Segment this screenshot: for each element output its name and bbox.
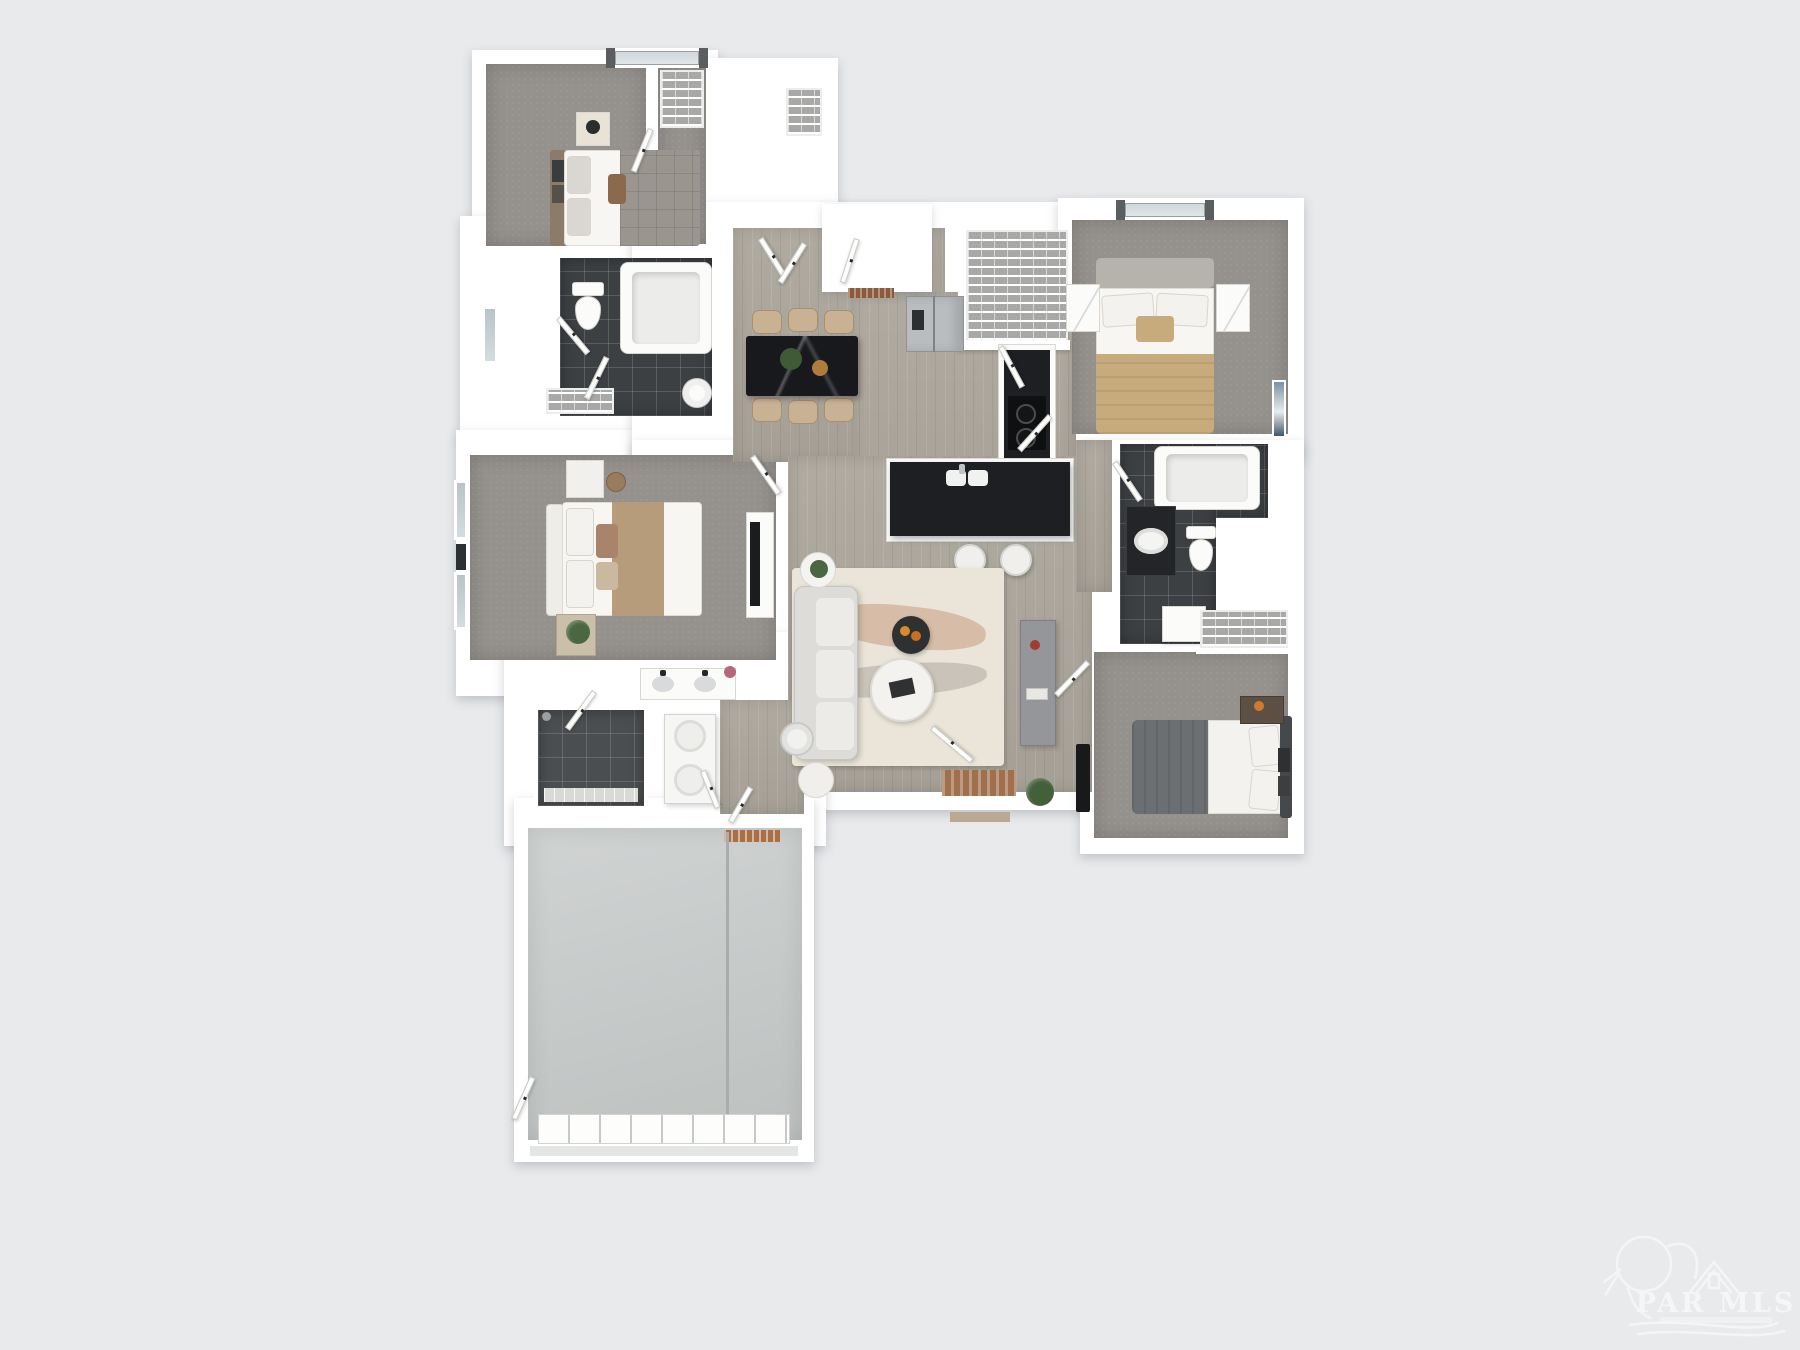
watermark-title: PAR MLS [1636, 1288, 1797, 1319]
bedroom3-wall-art [1278, 776, 1290, 796]
sofa-cushion [816, 650, 854, 698]
garage-floor [528, 828, 802, 1140]
master-stool [606, 472, 626, 492]
bedroom1-window [612, 48, 702, 68]
bedroom1-pillow [567, 198, 591, 236]
bedroom2-wall-art [1272, 380, 1286, 438]
living-tv [1076, 744, 1090, 812]
master-vanity-sink [652, 676, 674, 692]
cooktop-burner [1016, 404, 1036, 424]
entry-coat-closet-shelving [786, 88, 822, 136]
floor-plan-image: PAR MLS [0, 0, 1800, 1350]
dining-chair [824, 398, 854, 422]
bedroom1-pillow [567, 156, 591, 194]
washer-door [674, 720, 706, 752]
bedroom3-closet-shelving [1200, 610, 1288, 648]
dryer-door [674, 764, 706, 796]
bathroom2-sink [1134, 528, 1168, 554]
vanity-flowers [724, 666, 736, 678]
master-pillow [566, 560, 594, 608]
master-bed-runner [612, 502, 664, 616]
dining-chair [752, 310, 782, 334]
console-decor-bowl [1030, 640, 1040, 650]
bar-stool [1000, 544, 1032, 576]
garage-floor-seam [726, 832, 729, 1138]
bedroom2-window [1122, 200, 1208, 220]
bedroom2-blanket [1096, 354, 1214, 434]
bedroom2-window-sash [1116, 200, 1125, 220]
garage-door-panel [538, 1114, 790, 1144]
bedroom3-wall-art [1278, 748, 1290, 772]
entry-threshold [848, 288, 894, 298]
garage-entry-mat [724, 830, 780, 842]
bedroom3-decor [1254, 701, 1264, 711]
pouf [798, 762, 834, 798]
dining-chair [824, 310, 854, 334]
bedroom1-throw-pillow [608, 174, 626, 204]
pantry-shelving [966, 230, 1068, 342]
pelican-icon [1617, 1237, 1671, 1291]
bedroom1-window-sash [606, 48, 615, 68]
master-wall-art [456, 544, 466, 570]
toilet-tank [572, 282, 604, 296]
shower-trim [544, 788, 638, 802]
front-step [950, 812, 1010, 822]
master-window [454, 572, 468, 630]
bath-window [482, 306, 498, 364]
bedroom1-closet-shelving [660, 70, 704, 128]
bedroom3-pillow [1248, 725, 1282, 768]
sofa-cushion [816, 702, 854, 750]
refrigerator-dispenser [912, 310, 924, 330]
master-pillow [566, 508, 594, 556]
dining-chair [788, 308, 818, 332]
pedestal-sink [682, 378, 712, 408]
island-faucet [959, 464, 965, 474]
bedroom1-lamp [586, 120, 600, 134]
front-door-mat [942, 770, 1016, 796]
wall-entry-hall-top [688, 58, 838, 218]
dining-centerpiece-plant [780, 348, 802, 370]
bathroom2-toilet-tank [1186, 526, 1216, 539]
bedroom2-nightstand [1066, 284, 1100, 332]
pelican-wing [1668, 1244, 1697, 1278]
side-table-plant [810, 560, 828, 578]
bedroom1-window-sash [699, 48, 708, 68]
bathroom2-tub-basin [1166, 454, 1248, 502]
swoosh-icon [1630, 1323, 1777, 1328]
floor-plant [1026, 778, 1054, 806]
bedroom2-headboard [1096, 258, 1214, 288]
watermark: PAR MLS [1598, 1178, 1800, 1350]
dining-fruit-bowl [812, 360, 828, 376]
fruit-orange [900, 626, 910, 636]
master-vanity-faucet [702, 670, 708, 676]
master-throw-pillow [596, 524, 618, 558]
bedroom2-window-sash [1205, 200, 1214, 220]
bedroom2-accent-pillow [1136, 316, 1174, 342]
bedroom3-blanket [1132, 720, 1208, 814]
shower-head [542, 712, 551, 721]
master-closet-shelving [546, 388, 614, 414]
hallway-floor [1076, 440, 1112, 592]
bedroom3-closet-wall [1196, 648, 1290, 654]
garage-door-sill [530, 1146, 798, 1156]
water-heater [780, 722, 814, 756]
entry-porch-roof [822, 204, 932, 292]
bedroom2-nightstand [1216, 284, 1250, 332]
refrigerator-door-split [933, 296, 935, 352]
dining-table [746, 336, 858, 396]
master-vanity-faucet [660, 670, 666, 676]
bathtub-basin [632, 272, 700, 344]
island-sink-basin [968, 470, 988, 486]
console-table [1020, 620, 1056, 746]
master-throw-pillow [596, 562, 618, 590]
fruit-orange [911, 631, 921, 641]
dining-chair [752, 398, 782, 422]
master-tv [750, 522, 760, 606]
swoosh-icon [1638, 1331, 1784, 1335]
bedroom1-wall-art [552, 185, 564, 203]
bedroom1-wall-art [552, 160, 564, 182]
watermark-tagline-bar [1660, 1317, 1772, 1323]
sofa-cushion [816, 598, 854, 646]
console-decor-books [1026, 688, 1048, 700]
dining-chair [788, 400, 818, 424]
master-vanity-sink [694, 676, 716, 692]
master-nightstand [566, 460, 604, 498]
master-window [454, 480, 468, 540]
master-plant [566, 620, 590, 644]
bedroom3-pillow [1248, 769, 1282, 812]
